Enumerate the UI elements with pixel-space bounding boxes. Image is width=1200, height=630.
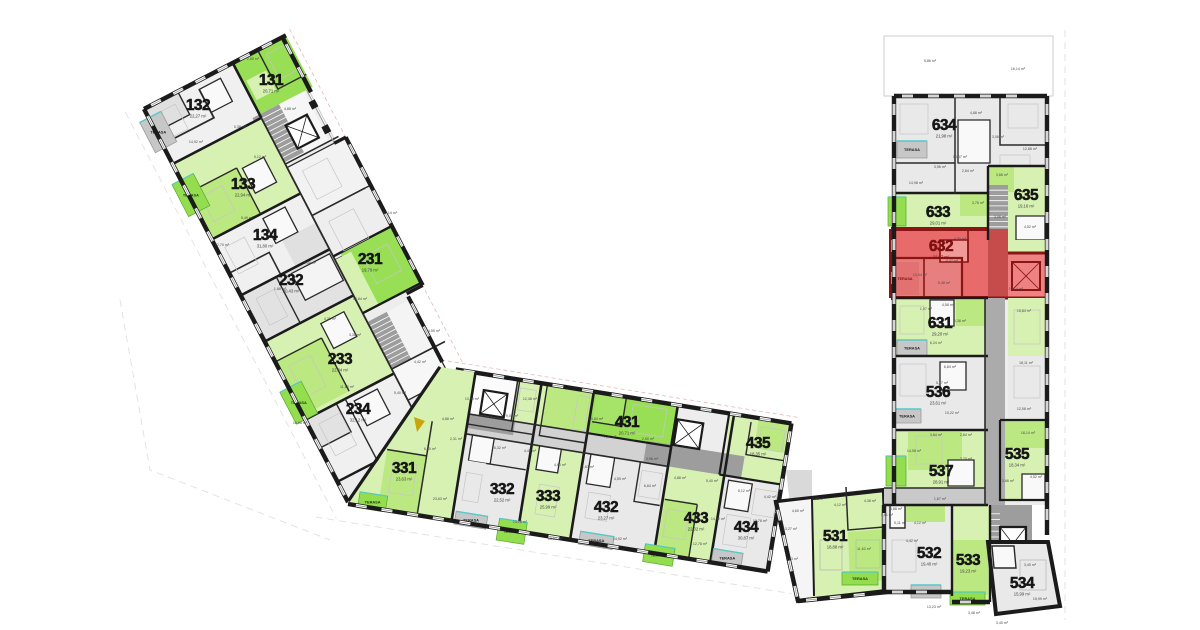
svg-text:5,86 m²: 5,86 m² <box>924 59 937 63</box>
svg-text:433: 433 <box>684 510 709 527</box>
svg-text:3,40 m²: 3,40 m² <box>996 621 1009 625</box>
svg-text:13,07 m²: 13,07 m² <box>548 537 563 541</box>
svg-text:19,23 m²: 19,23 m² <box>960 569 977 574</box>
svg-text:6,24 m²: 6,24 m² <box>930 341 943 345</box>
svg-text:TERASA: TERASA <box>904 346 920 351</box>
svg-text:18,11 m²: 18,11 m² <box>1019 361 1034 365</box>
svg-text:14,92 m²: 14,92 m² <box>613 537 628 541</box>
svg-text:5,40 m²: 5,40 m² <box>394 391 407 395</box>
svg-text:11,63 m²: 11,63 m² <box>857 547 872 551</box>
svg-text:TERASA: TERASA <box>365 499 381 504</box>
svg-text:5,12 m²: 5,12 m² <box>254 155 267 159</box>
svg-text:231: 231 <box>358 251 383 268</box>
svg-text:4,60 m²: 4,60 m² <box>792 509 805 513</box>
svg-text:4,52 m²: 4,52 m² <box>1024 225 1037 229</box>
svg-text:131: 131 <box>259 72 284 89</box>
svg-text:13,28 m²: 13,28 m² <box>513 520 528 524</box>
svg-text:14,98 m²: 14,98 m² <box>907 449 922 453</box>
svg-text:12,88 m²: 12,88 m² <box>1023 147 1038 151</box>
svg-text:4,88 m²: 4,88 m² <box>284 107 297 111</box>
svg-text:332: 332 <box>490 481 514 498</box>
svg-text:2,84 m²: 2,84 m² <box>962 169 975 173</box>
svg-text:12,14 m²: 12,14 m² <box>1009 287 1024 291</box>
svg-text:234: 234 <box>346 401 371 418</box>
svg-text:10,99 m²: 10,99 m² <box>465 397 480 401</box>
svg-text:15,84 m²: 15,84 m² <box>1017 309 1032 313</box>
svg-text:7,77 m²: 7,77 m² <box>604 435 617 439</box>
svg-text:30,87 m²: 30,87 m² <box>738 536 755 541</box>
svg-text:4,60 m²: 4,60 m² <box>554 463 567 467</box>
svg-text:4,42 m²: 4,42 m² <box>764 495 777 499</box>
svg-text:4,52 m²: 4,52 m² <box>1030 475 1043 479</box>
svg-text:12,08 m²: 12,08 m² <box>1017 407 1032 411</box>
svg-text:536: 536 <box>926 384 951 401</box>
svg-text:331: 331 <box>392 460 417 477</box>
svg-text:31,80 m²: 31,80 m² <box>257 244 274 249</box>
svg-text:TERASA: TERASA <box>897 277 912 281</box>
svg-text:2,31 m²: 2,31 m² <box>450 437 463 441</box>
svg-text:431: 431 <box>615 414 640 431</box>
svg-text:4,42 m²: 4,42 m² <box>414 360 427 364</box>
svg-text:3,06 m²: 3,06 m² <box>992 135 1005 139</box>
svg-text:22,52 m²: 22,52 m² <box>494 498 511 503</box>
svg-text:15,84 m²: 15,84 m² <box>589 417 604 421</box>
svg-text:TERASA: TERASA <box>904 147 920 152</box>
svg-text:18,34 m²: 18,34 m² <box>1009 463 1026 468</box>
svg-text:5,11 m²: 5,11 m² <box>894 521 907 525</box>
svg-text:18,35 m²: 18,35 m² <box>750 452 767 457</box>
svg-text:534: 534 <box>1010 575 1035 592</box>
svg-text:29,20 m²: 29,20 m² <box>932 332 949 337</box>
svg-text:19,79 m²: 19,79 m² <box>362 268 379 273</box>
svg-text:4,12 m²: 4,12 m² <box>914 521 927 525</box>
svg-text:23,63 m²: 23,63 m² <box>433 497 448 501</box>
svg-text:1,61 m²: 1,61 m² <box>881 513 894 517</box>
svg-text:4,88 m²: 4,88 m² <box>442 417 455 421</box>
svg-text:6,84 m²: 6,84 m² <box>944 365 957 369</box>
svg-text:22,94 m²: 22,94 m² <box>235 193 252 198</box>
svg-text:13,84 m²: 13,84 m² <box>353 297 368 301</box>
svg-text:1,67 m²: 1,67 m² <box>582 465 595 469</box>
svg-text:18,88 m²: 18,88 m² <box>827 545 844 550</box>
svg-text:22,27 m²: 22,27 m² <box>190 114 207 119</box>
svg-text:4,21 m²: 4,21 m² <box>324 317 337 321</box>
svg-text:23,27 m²: 23,27 m² <box>598 516 615 521</box>
svg-text:132: 132 <box>186 97 210 114</box>
svg-text:2,60 m²: 2,60 m² <box>642 437 655 441</box>
svg-text:TERASA: TERASA <box>719 555 735 560</box>
svg-text:5,48 m²: 5,48 m² <box>938 281 951 285</box>
svg-text:3,66 m²: 3,66 m² <box>1002 479 1015 483</box>
svg-text:21,98 m²: 21,98 m² <box>936 134 953 139</box>
svg-text:537: 537 <box>929 463 953 480</box>
svg-text:29,01 m²: 29,01 m² <box>930 221 947 226</box>
svg-text:TERASA: TERASA <box>852 576 868 581</box>
svg-text:1,67 m²: 1,67 m² <box>934 497 947 501</box>
svg-text:4,58 m²: 4,58 m² <box>942 303 955 307</box>
svg-text:18,14 m²: 18,14 m² <box>1021 431 1036 435</box>
svg-text:3,06 m²: 3,06 m² <box>994 215 1007 219</box>
svg-text:19,16 m²: 19,16 m² <box>1018 204 1035 209</box>
svg-text:6,84 m²: 6,84 m² <box>644 484 657 488</box>
svg-text:12,70 m²: 12,70 m² <box>215 243 230 247</box>
svg-text:4,88 m²: 4,88 m² <box>674 476 687 480</box>
svg-text:10,22 m²: 10,22 m² <box>945 411 960 415</box>
svg-text:432: 432 <box>594 499 618 516</box>
svg-text:233: 233 <box>328 351 353 368</box>
svg-text:631: 631 <box>928 315 953 332</box>
svg-text:32,12 m²: 32,12 m² <box>350 418 367 423</box>
svg-text:20,71 m²: 20,71 m² <box>619 431 636 436</box>
svg-text:13,04 m²: 13,04 m² <box>913 273 928 277</box>
svg-text:3,66 m²: 3,66 m² <box>996 173 1009 177</box>
svg-text:4,88 m²: 4,88 m² <box>890 507 903 511</box>
svg-text:4,55 m²: 4,55 m² <box>954 237 967 241</box>
svg-text:435: 435 <box>746 435 771 452</box>
svg-text:3,76 m²: 3,76 m² <box>972 201 985 205</box>
svg-text:2,85 m²: 2,85 m² <box>247 57 260 61</box>
svg-text:25,99 m²: 25,99 m² <box>540 505 557 510</box>
svg-text:5,32 m²: 5,32 m² <box>494 446 507 450</box>
svg-text:3,56 m²: 3,56 m² <box>934 165 947 169</box>
svg-text:134: 134 <box>253 227 278 244</box>
svg-text:12,78 m²: 12,78 m² <box>753 519 768 523</box>
svg-text:6,38 m²: 6,38 m² <box>954 319 967 323</box>
svg-text:333: 333 <box>536 488 561 505</box>
svg-text:4,55 m²: 4,55 m² <box>428 329 441 333</box>
svg-text:4,38 m²: 4,38 m² <box>864 499 877 503</box>
svg-text:1,07 m²: 1,07 m² <box>920 307 933 311</box>
svg-text:3,40 m²: 3,40 m² <box>1024 563 1037 567</box>
svg-text:22,04 m²: 22,04 m² <box>332 368 349 373</box>
svg-text:19,40 m²: 19,40 m² <box>921 562 938 567</box>
svg-text:23,63 m²: 23,63 m² <box>396 477 413 482</box>
svg-text:5,49 m²: 5,49 m² <box>241 216 254 220</box>
svg-text:12,78 m²: 12,78 m² <box>693 542 708 546</box>
svg-text:4,55 m²: 4,55 m² <box>614 477 627 481</box>
svg-text:5,12 m²: 5,12 m² <box>738 489 751 493</box>
svg-text:0,38 m²: 0,38 m² <box>234 125 247 129</box>
svg-text:533: 533 <box>956 552 981 569</box>
svg-text:15,99 m²: 15,99 m² <box>1014 592 1031 597</box>
svg-text:9,54 m²: 9,54 m² <box>304 261 317 265</box>
svg-text:16,14 m²: 16,14 m² <box>1011 67 1026 71</box>
svg-text:3,64 m²: 3,64 m² <box>930 433 943 437</box>
svg-text:531: 531 <box>823 528 848 545</box>
svg-text:635: 635 <box>1014 187 1039 204</box>
svg-text:4,55 m²: 4,55 m² <box>812 497 825 501</box>
svg-text:5,40 m²: 5,40 m² <box>706 479 719 483</box>
svg-text:4,42 m²: 4,42 m² <box>906 539 919 543</box>
svg-text:14,92 m²: 14,92 m² <box>711 517 726 521</box>
svg-text:23,61 m²: 23,61 m² <box>930 401 947 406</box>
svg-text:11,83 m²: 11,83 m² <box>340 385 355 389</box>
svg-text:13,23 m²: 13,23 m² <box>927 605 942 609</box>
svg-text:14,92 m²: 14,92 m² <box>189 140 204 144</box>
svg-text:632: 632 <box>929 238 953 255</box>
svg-text:3,70 m²: 3,70 m² <box>960 457 973 461</box>
svg-text:532: 532 <box>917 545 941 562</box>
svg-text:22,02 m²: 22,02 m² <box>688 527 705 532</box>
svg-text:4,42 m²: 4,42 m² <box>946 259 959 263</box>
svg-text:4,88 m²: 4,88 m² <box>970 111 983 115</box>
svg-text:3,36 m²: 3,36 m² <box>349 333 362 337</box>
svg-text:10,96 m²: 10,96 m² <box>293 421 308 425</box>
svg-text:TERASA: TERASA <box>899 414 915 419</box>
svg-text:9,04 m²: 9,04 m² <box>506 414 519 418</box>
svg-text:28,91 m²: 28,91 m² <box>933 480 950 485</box>
svg-text:634: 634 <box>932 117 957 134</box>
svg-text:4,42 m²: 4,42 m² <box>524 449 537 453</box>
svg-text:3,96 m²: 3,96 m² <box>646 457 659 461</box>
svg-text:1,88 m²: 1,88 m² <box>274 287 287 291</box>
svg-text:13,27 m²: 13,27 m² <box>783 527 798 531</box>
svg-text:6,35 m²: 6,35 m² <box>424 447 437 451</box>
svg-text:133: 133 <box>231 176 256 193</box>
svg-text:10,67 m²: 10,67 m² <box>953 155 968 159</box>
svg-text:20,71 m²: 20,71 m² <box>263 89 280 94</box>
svg-text:4,12 m²: 4,12 m² <box>834 503 847 507</box>
svg-text:15,99 m²: 15,99 m² <box>1033 597 1048 601</box>
svg-text:9,23 m²: 9,23 m² <box>786 557 799 561</box>
svg-text:2,84 m²: 2,84 m² <box>960 433 973 437</box>
svg-text:3,48 m²: 3,48 m² <box>968 611 981 615</box>
svg-text:633: 633 <box>926 204 951 221</box>
svg-text:14,98 m²: 14,98 m² <box>909 181 924 185</box>
svg-text:12,14 m²: 12,14 m² <box>383 211 398 215</box>
svg-text:535: 535 <box>1005 446 1030 463</box>
svg-text:5,17 m²: 5,17 m² <box>936 381 949 385</box>
svg-text:12,48 m²: 12,48 m² <box>523 397 538 401</box>
